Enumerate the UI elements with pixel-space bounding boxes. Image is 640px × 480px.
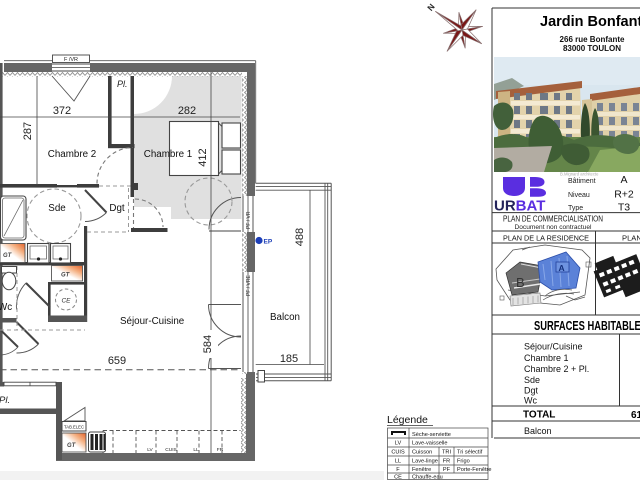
svg-text:PF / VRE: PF / VRE [246, 274, 252, 296]
svg-text:Sde: Sde [524, 375, 540, 385]
svg-text:PLAN DE COMMERCIALISATION: PLAN DE COMMERCIALISATION [503, 215, 603, 224]
svg-text:Type: Type [568, 205, 583, 212]
svg-text:CE: CE [394, 475, 402, 480]
svg-text:Niveau: Niveau [568, 192, 590, 199]
svg-text:F /VR: F /VR [64, 57, 78, 63]
svg-text:412: 412 [197, 148, 209, 166]
svg-text:Lave-vaisselle: Lave-vaisselle [412, 441, 447, 447]
svg-text:GT: GT [61, 273, 71, 279]
svg-text:PLAN DE LA RESIDENCE: PLAN DE LA RESIDENCE [503, 234, 589, 243]
svg-text:FR: FR [217, 447, 224, 453]
svg-text:659: 659 [108, 355, 126, 367]
svg-text:A: A [559, 263, 565, 273]
svg-text:Porte-Fenêtre: Porte-Fenêtre [457, 467, 492, 473]
svg-text:Pl.: Pl. [117, 79, 128, 89]
svg-text:Bâtiment: Bâtiment [568, 178, 596, 185]
svg-text:Légende: Légende [387, 414, 428, 426]
svg-text:PF / VR: PF / VR [246, 211, 252, 229]
svg-text:Cuisson: Cuisson [412, 450, 432, 456]
svg-text:Document non contractuel: Document non contractuel [515, 224, 593, 231]
svg-text:CUIS: CUIS [391, 450, 405, 456]
svg-text:F: F [396, 467, 400, 473]
svg-text:SURFACES HABITABLES: SURFACES HABITABLES [534, 318, 640, 333]
svg-text:Sèche-serviette: Sèche-serviette [412, 432, 451, 438]
svg-text:Dgt: Dgt [109, 203, 125, 214]
svg-text:FR: FR [443, 459, 450, 465]
svg-text:Wc: Wc [524, 396, 537, 406]
svg-text:EP: EP [264, 239, 273, 246]
svg-text:URBAT: URBAT [494, 198, 545, 215]
svg-text:TRI: TRI [442, 450, 451, 456]
svg-text:Balcon: Balcon [524, 426, 552, 436]
svg-text:Jardin Bonfante: Jardin Bonfante [540, 14, 640, 30]
svg-text:Balcon: Balcon [270, 312, 300, 323]
svg-text:LV: LV [147, 447, 153, 453]
svg-text:Chambre 2 + Pl.: Chambre 2 + Pl. [524, 364, 589, 374]
svg-text:GT: GT [67, 443, 77, 449]
svg-text:GT: GT [3, 253, 13, 259]
svg-text:83000 TOULON: 83000 TOULON [563, 44, 621, 53]
svg-text:Chambre 2: Chambre 2 [48, 149, 96, 160]
svg-text:T3: T3 [618, 202, 630, 214]
svg-text:Frigo: Frigo [457, 459, 470, 465]
svg-text:TOTAL: TOTAL [523, 410, 555, 421]
svg-text:61: 61 [631, 410, 640, 421]
svg-text:584: 584 [202, 335, 214, 353]
svg-text:287: 287 [22, 122, 34, 140]
svg-text:LL: LL [193, 447, 199, 453]
svg-text:TAB.ELEC: TAB.ELEC [64, 425, 84, 430]
svg-text:Pl.: Pl. [0, 395, 10, 406]
svg-text:Dgt: Dgt [524, 386, 539, 396]
svg-text:LV: LV [395, 441, 402, 447]
svg-text:Sde: Sde [48, 203, 66, 214]
svg-text:Séjour/Cuisine: Séjour/Cuisine [524, 342, 583, 352]
svg-text:LL: LL [395, 459, 401, 465]
svg-text:488: 488 [294, 228, 306, 246]
svg-text:Tri sélectif: Tri sélectif [457, 450, 483, 456]
svg-text:PLAN DE L: PLAN DE L [622, 234, 640, 243]
svg-text:B: B [516, 275, 525, 290]
svg-text:Chambre 1: Chambre 1 [524, 353, 569, 363]
svg-text:PF: PF [443, 467, 451, 473]
svg-text:Lave-linge: Lave-linge [412, 459, 438, 465]
svg-text:Séjour-Cuisine: Séjour-Cuisine [120, 316, 185, 327]
svg-text:Fenêtre: Fenêtre [412, 467, 431, 473]
svg-text:266 rue Bonfante: 266 rue Bonfante [560, 35, 625, 44]
svg-text:B.Mignard architecte: B.Mignard architecte [560, 172, 599, 177]
svg-text:Chauffe-eau: Chauffe-eau [412, 475, 443, 480]
svg-text:A: A [620, 174, 627, 186]
svg-text:R+2: R+2 [614, 189, 634, 201]
svg-text:Chambre 1: Chambre 1 [144, 149, 192, 160]
svg-text:282: 282 [178, 105, 196, 117]
svg-text:185: 185 [280, 353, 298, 365]
svg-text:CE: CE [61, 298, 71, 305]
svg-text:372: 372 [53, 105, 71, 117]
svg-text:CUIS: CUIS [165, 447, 176, 453]
svg-text:Wc: Wc [0, 302, 12, 313]
